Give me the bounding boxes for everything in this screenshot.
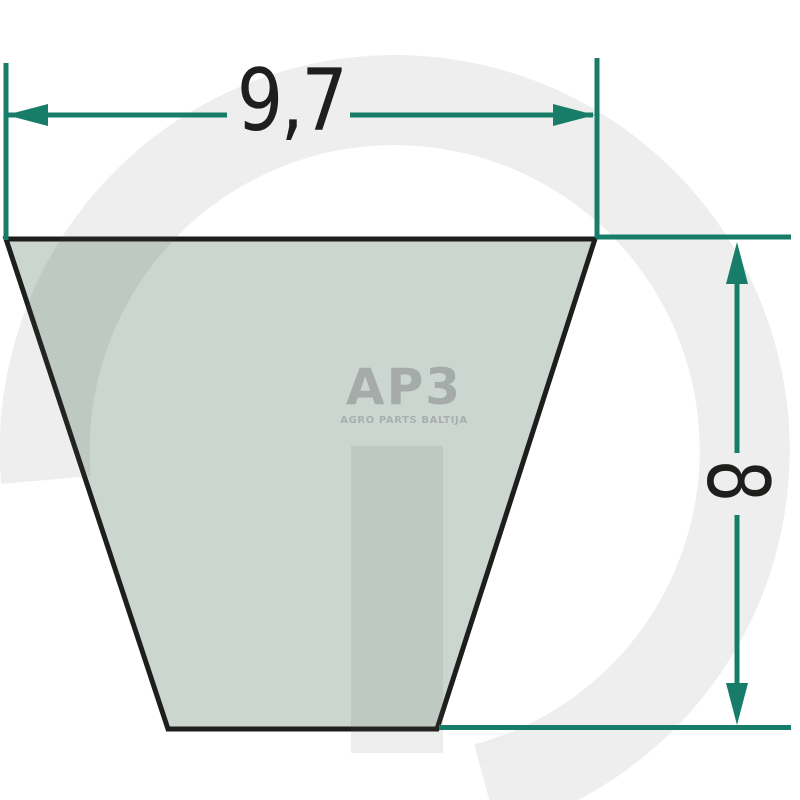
apb-logo: AP3 AGRO PARTS BALTIJA — [340, 362, 467, 426]
height-dimension-line-top-segment — [735, 280, 740, 453]
width-dimension-value: 9,7 — [237, 58, 346, 144]
height-dimension-value: 8 — [694, 460, 780, 503]
width-extension-line-right — [595, 58, 600, 238]
apb-logo-subtitle: AGRO PARTS BALTIJA — [340, 416, 467, 426]
height-extension-line-top — [596, 235, 791, 240]
arrowhead-down-icon — [726, 683, 748, 725]
width-extension-line-left — [4, 63, 9, 240]
arrowhead-left-icon — [6, 104, 48, 126]
belt-cross-section-diagram: 9,7 8 AP3 AGRO PARTS BALTIJA — [0, 0, 800, 800]
height-extension-line-bottom — [439, 725, 791, 730]
watermark-stem — [351, 446, 443, 753]
height-dimension-line-bottom-segment — [735, 515, 740, 688]
apb-logo-text: AP3 — [340, 362, 467, 412]
